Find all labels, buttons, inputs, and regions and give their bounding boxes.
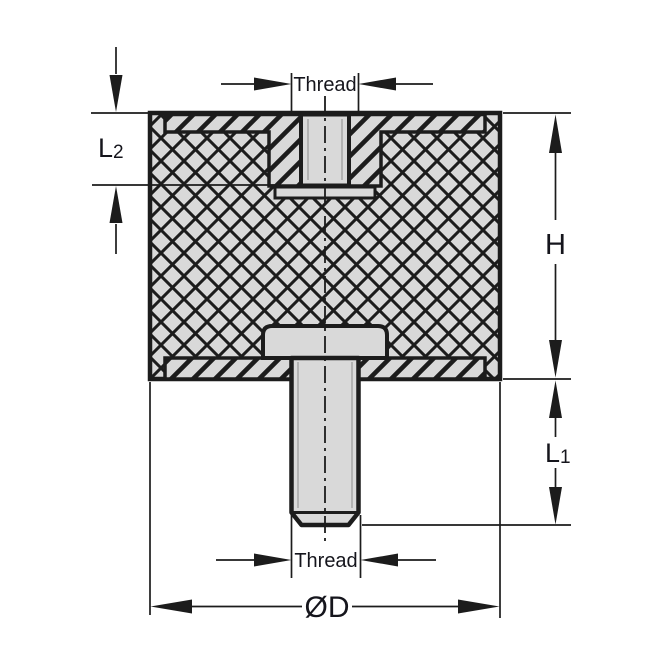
label-l1-main: L: [545, 438, 560, 468]
technical-drawing-rubber-mount: Thread L2 H L1 Thread: [0, 0, 670, 670]
l1-arrow-bottom: [549, 487, 562, 525]
drawing-svg: Thread L2 H L1 Thread: [0, 0, 670, 670]
label-diameter: ØD: [305, 591, 350, 624]
dimension-l1: [362, 379, 571, 525]
label-thread-bottom: Thread: [294, 550, 357, 572]
label-l2: L2: [98, 133, 124, 163]
l2-arrow-bottom: [110, 186, 123, 223]
h-arrow-bottom: [549, 340, 562, 378]
label-l2-main: L: [98, 133, 113, 163]
label-h: H: [545, 229, 566, 261]
thread-bottom-arrow-right: [361, 554, 399, 567]
label-thread-top: Thread: [293, 74, 356, 96]
diameter-arrow-right: [458, 600, 500, 614]
l2-arrow-top: [110, 75, 123, 112]
l1-arrow-top: [549, 381, 562, 419]
label-l1-sub: 1: [560, 447, 571, 468]
thread-bottom-arrow-left: [254, 554, 292, 567]
diameter-arrow-left: [151, 600, 193, 614]
label-l1: L1: [545, 438, 571, 468]
thread-top-arrow-left: [254, 78, 292, 91]
thread-top-arrow-right: [359, 78, 397, 91]
h-arrow-top: [549, 115, 562, 154]
label-l2-sub: 2: [113, 142, 124, 163]
